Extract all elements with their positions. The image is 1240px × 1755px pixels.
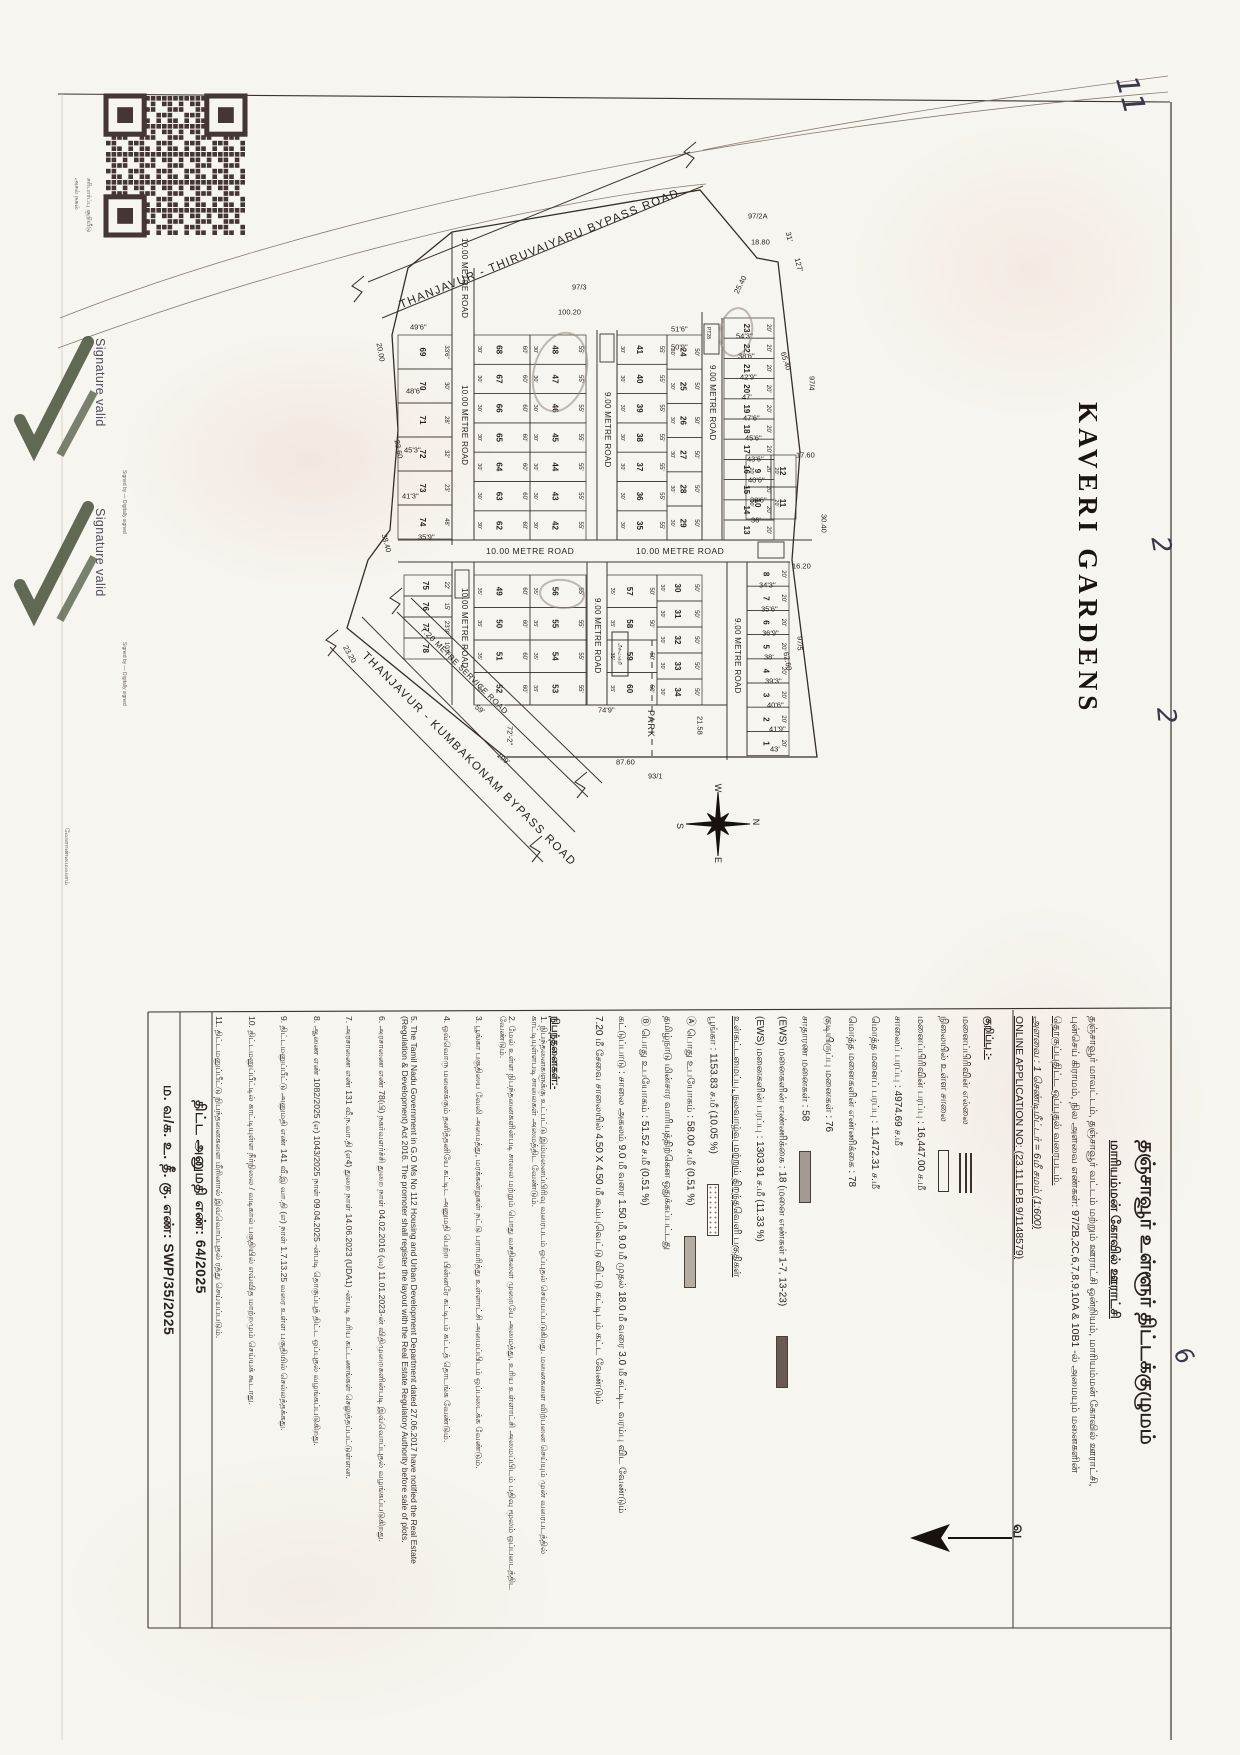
road-label: 10.00 METRE ROAD: [460, 385, 469, 465]
road-label: 9.00 METRE ROAD: [593, 598, 602, 674]
margin-note: வேளாண்மைவளம்: [63, 828, 70, 978]
scale-note: அளவை : 1 செண்டிமீட்டர் = 6மீ சமம் (1:600…: [1030, 1016, 1042, 1626]
qr-caption: சரிபார்ப்பு குறியீடு: [85, 178, 92, 328]
legend-swatch-gray: [799, 1151, 811, 1203]
condition-item: 8. ஆணை எண் 1082/2025 (எ) 1043/2025 நாள் …: [311, 1016, 320, 1608]
stat-line: மனைப்பிரிவின் எல்லை: [959, 1016, 972, 1616]
stat-line: சாதாரண மனைகள் : 58: [799, 1016, 811, 1616]
header-description-line: தஞ்சாவூர் மாவட்டம், தஞ்சாவூர் வட்டம் மற்…: [1086, 1016, 1098, 1626]
condition-item: 6. அரசாணை எண் 78(பி) நகர்வளர்ச்சி துறை ந…: [376, 1016, 385, 1608]
stat-line: குடியிருப்பு மனைகள் : 76: [823, 1016, 834, 1616]
north-label: வ: [1010, 1524, 1027, 1538]
handwritten-mark: 2: [1150, 706, 1181, 725]
signature-caption: Signed by — Digitally signed: [121, 642, 127, 812]
stat-line: Ⓑ பொது உபயோகம் : 51.52 ச.மீ (0.51 %): [639, 1016, 650, 1616]
condition-item: 2. மேல் உள்ள நிபந்தனைகளின்படி சாலை மற்று…: [497, 1016, 516, 1608]
header-description-line: புன்செய் கிராமம், நில அளவை எண்கள்: 97/2B…: [1068, 1016, 1080, 1626]
label-overlay: THANJAVUR - THIRUVAIYARU BYPASS ROADTHAN…: [0, 0, 1240, 1755]
condition-item: 3. பூங்கா பகுதியை வேலி அமைத்து, மரக்கன்ற…: [474, 1016, 483, 1608]
stat-line: மொத்த மனைப் பரப்பு : 11,472.31 ச.மீ: [869, 1016, 880, 1616]
condition-item: 5. The Tamil Nadu Government in G.O Ms N…: [399, 1016, 418, 1608]
road-label: PT28: [705, 327, 711, 339]
stat-line: மனைப்பிரிவின் பரப்பு : 16,447.00 ச.மீ: [915, 1016, 926, 1616]
stat-line: தமிழ்நாடு மின்சார வாரியத்திற்கென ஒதுக்கப…: [662, 1016, 673, 1616]
road-label: 9.00 METRE ROAD: [733, 618, 742, 694]
stat-line: சாலைப் பரப்பு : 4974.69 ச.மீ: [892, 1016, 903, 1616]
legend-swatch-gray2: [684, 1236, 696, 1288]
road-label: THANJAVUR - KUMBAKONAM BYPASS ROAD: [360, 650, 579, 869]
handwritten-mark: 11: [1108, 72, 1152, 118]
scanned-layout-plan-page: 6933'6"7030'7128'7232'7323'7448'6860'30'…: [0, 0, 1240, 1755]
stat-line: உள்கட்டமைப்பு, நலவாழ்வு மற்றும் திறந்தவெ…: [731, 1016, 742, 1616]
authority-title: தஞ்சாவூர் உள்ளூர் திட்டக்குழுமம்: [1136, 1140, 1158, 1740]
legend-symbol-triple: [959, 1153, 972, 1193]
legend-symbol-rect: [938, 1150, 949, 1192]
signature-caption: Signed by — Digitally signed: [121, 470, 127, 640]
road-label: 9.00 METRE ROAD: [708, 365, 717, 441]
stat-line: பூங்கா : 1153.83 ச.மீ (10.05 %): [707, 1016, 719, 1616]
layout-title: KAVERI GARDENS: [1072, 402, 1102, 742]
signature-valid-stamp: Signature valid: [92, 508, 106, 708]
stat-line: நிலையில் உள்ள சாலை: [938, 1016, 949, 1616]
condition-item: 4. ஒவ்வொரு மனைக்கும் தனித்தனியே கட்டிட அ…: [441, 1016, 450, 1608]
handwritten-mark: 6: [1168, 1342, 1200, 1369]
condition-item: 9. திட்டமனுப்பீட்டு அனுமதி எண் 141 வீ.இ …: [279, 1016, 288, 1608]
road-label: 9.00 METRE ROAD: [603, 392, 612, 468]
header-description-line: தொகுப்புதிட்ட ஒப்புதல் வரைபடம்.: [1050, 1016, 1062, 1626]
road-label: 10.00 METRE ROAD: [460, 238, 469, 318]
park-label: PARK: [645, 710, 655, 738]
legend-swatch-dark: [776, 1336, 788, 1388]
stat-line: (EWS) மனைகளின் பரப்பு : 1303.91 ச.மீ (11…: [754, 1016, 765, 1616]
road-label: 10.00 METRE ROAD: [460, 588, 469, 668]
plan-approval-number: திட்ட அனுமதி எண்: 64/2025: [193, 1100, 208, 1660]
road-label: 10.00 METRE ROAD: [636, 546, 724, 556]
stat-line: (EWS) மனைகளின் எண்ணிக்கை : 18 (மனை எண்கள…: [776, 1016, 788, 1616]
condition-item: 10. திட்டமனுப்பீட்டில் காட்டியுள்ள நீர்ந…: [246, 1016, 255, 1608]
condition-item: 7. அரசாணை எண் 131 வீ.ந.வா.தி (எ4) துறை ந…: [344, 1016, 353, 1608]
condition-item: 1. நிபந்தனைகளுக்கு உட்பட்டு இம்மனைப்பிரி…: [529, 1016, 548, 1608]
panchayat-subtitle: மாரியம்மன் கோவில் ஊராட்சி: [1108, 1140, 1122, 1740]
legend-heading: குறிப்பு :-: [982, 1016, 994, 1626]
legend-swatch-dotted: [707, 1184, 719, 1236]
condition-item: 11. திட்டமனுப்பீட்டு நிபந்தனைகளை மீறினால…: [214, 1016, 223, 1608]
stat-line: Ⓐ பொது உபயோகம் : 58.00 ச.மீ (0.51 %): [684, 1016, 696, 1616]
qr-caption: அசல் நகல்: [73, 178, 80, 328]
stat-line: கட்டுப்பாடு : சாலை அகலம் 9.0 மீ வரை 1.50…: [616, 1016, 627, 1616]
road-label: 10.00 METRE ROAD: [486, 546, 574, 556]
file-ref-number: ம. வ/க. உ. தீ. கு. எண்: SWP/35/2025: [161, 1085, 176, 1645]
stat-line: 7.20 மீ சேவை சாலையில் 4.50 X 4.50 மீ கூம…: [593, 1016, 604, 1616]
stat-line: மொத்த மனைகளின் எண்ணிக்கை : 78: [846, 1016, 857, 1616]
road-label: THANJAVUR - THIRUVAIYARU BYPASS ROAD: [398, 187, 681, 311]
conditions-heading: நிபந்தனைகள்:-: [548, 1016, 560, 1626]
handwritten-mark: 2: [1144, 534, 1176, 556]
